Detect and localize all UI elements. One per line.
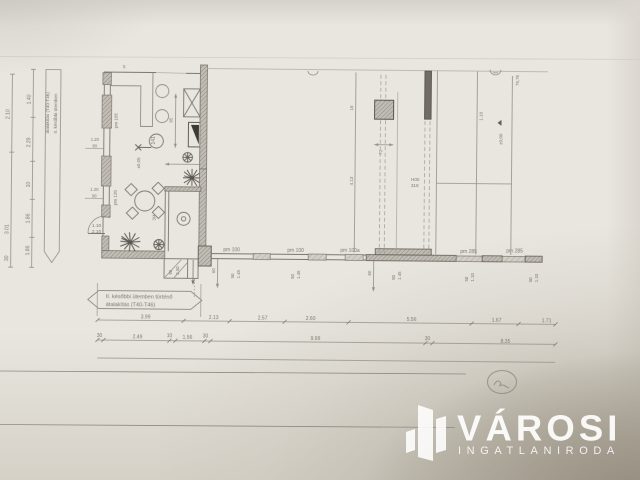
svg-text:pm 100: pm 100 [223, 247, 240, 253]
svg-text:10: 10 [167, 333, 173, 339]
svg-text:72: 72 [378, 149, 383, 154]
svg-text:95: 95 [168, 117, 173, 123]
svg-text:50: 50 [391, 274, 396, 279]
svg-text:16: 16 [349, 105, 354, 111]
svg-text:4.13: 4.13 [349, 176, 354, 185]
svg-text:1.20: 1.20 [90, 187, 99, 192]
svg-text:pm 100a: pm 100a [340, 248, 360, 254]
svg-text:30: 30 [203, 333, 209, 339]
svg-text:2.10: 2.10 [6, 109, 12, 119]
svg-text:pm 285: pm 285 [506, 248, 523, 254]
svg-text:1.20: 1.20 [91, 137, 100, 142]
svg-text:50: 50 [230, 273, 235, 278]
svg-text:1.10: 1.10 [92, 223, 102, 229]
svg-text:1.86: 1.86 [25, 245, 31, 255]
svg-text:II. későbbi ütemben: II. későbbi ütemben [53, 93, 58, 134]
svg-text:50: 50 [528, 277, 533, 282]
svg-text:3/4: 3/4 [152, 214, 157, 221]
svg-text:±0.05: ±0.05 [136, 157, 141, 169]
svg-text:2.13: 2.13 [209, 315, 219, 321]
svg-text:5: 5 [123, 64, 126, 69]
svg-text:2.49: 2.49 [133, 334, 143, 340]
svg-text:II. későbbi ütemben történő: II. későbbi ütemben történő [106, 294, 173, 301]
svg-text:5.56: 5.56 [407, 317, 417, 323]
svg-text:76,76: 76,76 [515, 74, 520, 86]
svg-text:2.57: 2.57 [258, 316, 268, 322]
svg-text:10: 10 [26, 182, 32, 188]
svg-text:pm 100: pm 100 [287, 248, 304, 254]
svg-text:3.01: 3.01 [4, 224, 10, 234]
svg-text:H00: H00 [411, 177, 420, 182]
svg-text:30: 30 [4, 255, 10, 261]
svg-text:50: 50 [290, 273, 295, 278]
svg-text:1.10: 1.10 [470, 273, 475, 282]
svg-text:1.86: 1.86 [26, 213, 32, 223]
svg-text:pm 105: pm 105 [113, 113, 118, 129]
svg-text:pm 285: pm 285 [460, 249, 477, 255]
svg-text:2.60: 2.60 [175, 266, 180, 275]
svg-text:INGATLANIRODA: INGATLANIRODA [458, 445, 620, 457]
svg-text:±0,00: ±0,00 [498, 133, 503, 145]
svg-text:9.99: 9.99 [311, 336, 321, 342]
svg-text:1.71: 1.71 [542, 318, 552, 324]
svg-text:1.67: 1.67 [492, 318, 502, 324]
svg-text:1.45: 1.45 [397, 271, 402, 280]
svg-text:30: 30 [425, 336, 431, 342]
svg-text:1.56: 1.56 [183, 335, 193, 341]
svg-text:141: 141 [151, 136, 157, 145]
svg-text:2.10: 2.10 [92, 229, 102, 235]
svg-text:1.45: 1.45 [296, 270, 301, 279]
svg-text:1.10: 1.10 [534, 273, 539, 282]
svg-text:átalakítás (T40-T46): átalakítás (T40-T46) [106, 302, 156, 308]
svg-text:8.35: 8.35 [501, 339, 511, 345]
svg-text:90: 90 [168, 269, 173, 274]
svg-text:pm 120: pm 120 [113, 190, 118, 206]
svg-text:30: 30 [97, 333, 103, 339]
svg-text:3.99: 3.99 [141, 314, 151, 320]
svg-text:1.40: 1.40 [27, 94, 33, 104]
svg-text:1.10: 1.10 [479, 111, 484, 120]
svg-text:90: 90 [92, 193, 97, 198]
svg-text:átalakítás (T40-T46): átalakítás (T40-T46) [45, 92, 50, 134]
svg-text:90: 90 [92, 143, 97, 148]
svg-text:1.45: 1.45 [236, 269, 241, 278]
svg-text:50: 50 [464, 276, 469, 281]
svg-text:2.60: 2.60 [306, 316, 316, 322]
svg-text:2.29: 2.29 [26, 137, 32, 147]
svg-text:318: 318 [411, 183, 419, 188]
svg-text:VÁROSI: VÁROSI [457, 408, 622, 449]
svg-text:60: 60 [367, 270, 372, 275]
svg-text:60: 60 [211, 268, 216, 273]
